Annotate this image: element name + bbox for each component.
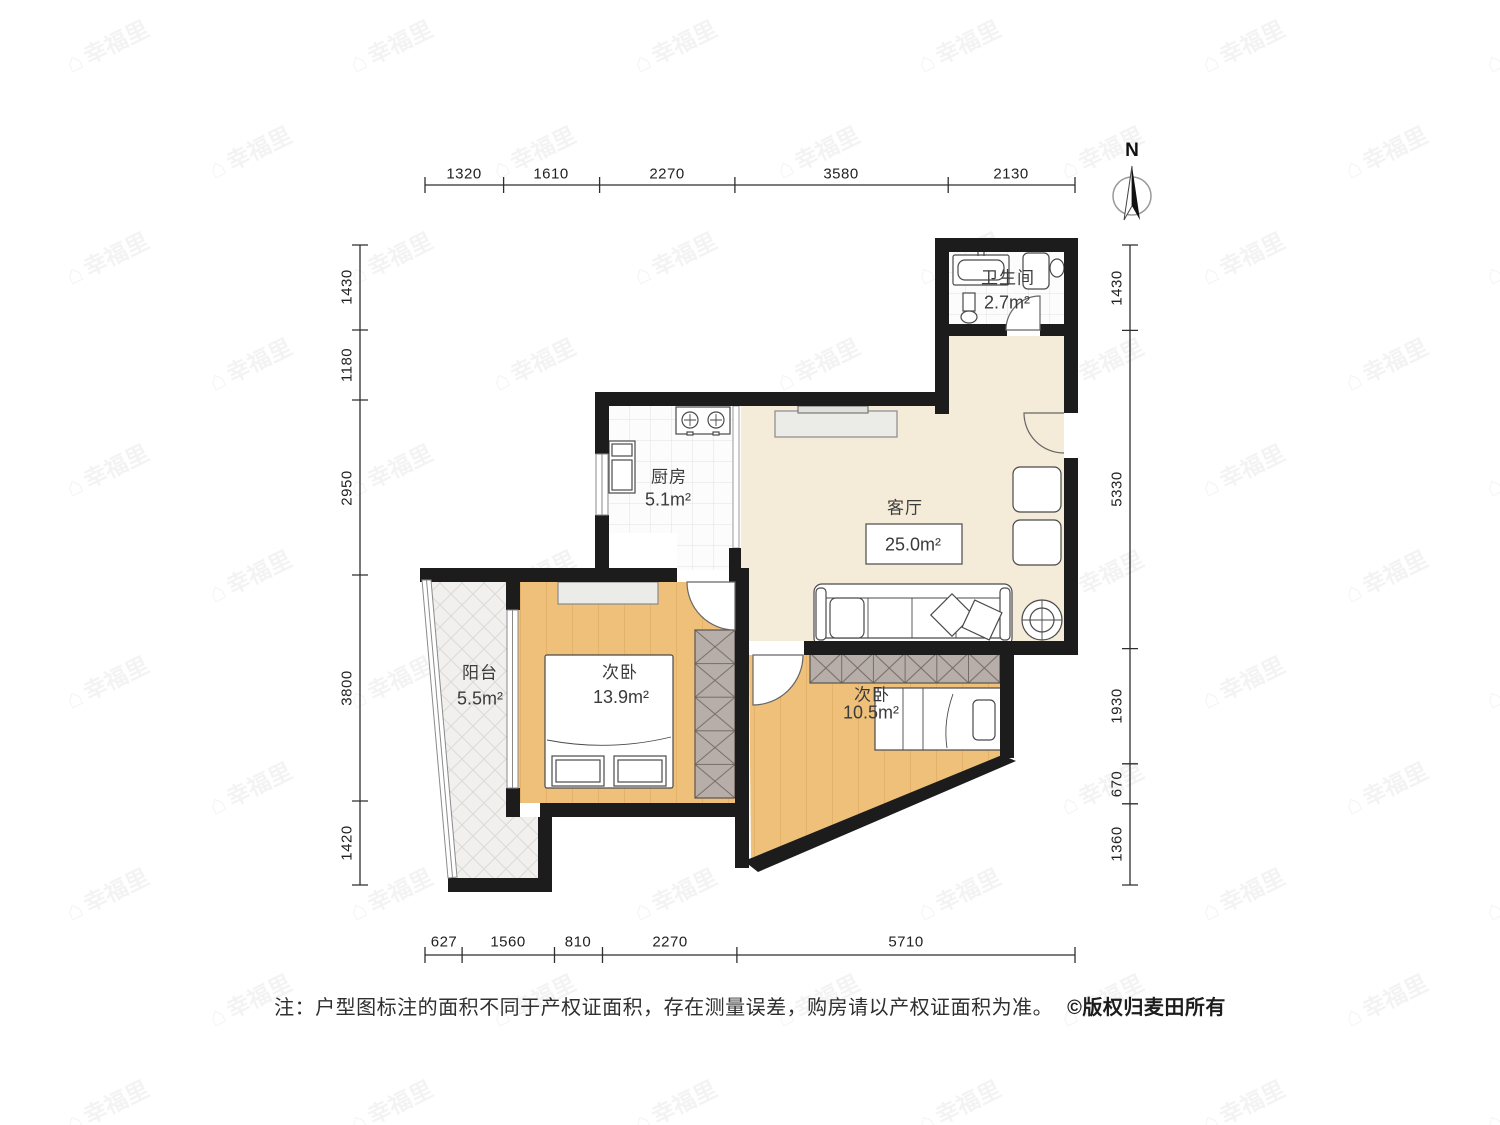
north-arrow-icon [1113,166,1151,220]
dim-label: 2270 [652,934,687,951]
dim-label: 627 [431,934,458,951]
dim-label: 1430 [1109,270,1126,305]
side-table-2 [1013,520,1061,565]
dim-label: 3800 [339,670,356,705]
entry-corridor-floor [949,336,1064,406]
round-table [1022,600,1062,640]
floorplan-page: ⌂幸福里⌂幸福里⌂幸福里⌂幸福里⌂幸福里⌂幸福里⌂幸福里⌂幸福里⌂幸福里⌂幸福里… [0,0,1500,1125]
dim-label: 1610 [533,166,568,183]
refrigerator [609,441,635,493]
dim-label: 5710 [888,934,923,951]
bedroom1-wardrobe [695,630,735,798]
dim-label: 3580 [823,166,858,183]
living-room-label: 客厅 [887,494,923,519]
floorplan-drawing [0,0,1500,1125]
kitchen-divider [733,406,739,548]
bedroom2-area: 10.5m² [843,703,899,724]
kitchen-label: 厨房 [651,463,687,488]
dim-label: 1360 [1109,826,1126,861]
bathroom-area: 2.7m² [984,293,1030,314]
dim-label: 2130 [993,166,1028,183]
bedroom2-wardrobe [810,653,1000,683]
kitchen-area: 5.1m² [645,490,691,511]
dim-label: 670 [1109,771,1126,798]
dim-label: 1180 [339,348,356,382]
living-room-area: 25.0m² [885,535,941,556]
sofa [814,584,1012,646]
dim-label: 1320 [446,166,481,183]
dim-label: 810 [565,934,592,951]
balcony-label: 阳台 [462,659,498,684]
side-table-1 [1013,467,1061,512]
disclaimer-note: 注：户型图标注的面积不同于产权证面积，存在测量误差，购房请以产权证面积为准。©版… [0,991,1500,1020]
tv-cabinet [775,406,897,437]
dim-label: 1420 [339,825,356,860]
dim-label: 1560 [490,934,525,951]
balcony-area: 5.5m² [457,689,503,710]
dim-label: 2950 [339,470,356,505]
dresser [558,582,658,604]
bedroom1-label: 次卧 [594,663,646,683]
bathroom-label: 卫生间 [981,264,1035,289]
dim-label: 1430 [339,269,356,304]
kitchen-floor-notch [609,533,677,570]
stove [676,407,730,435]
dim-label: 2270 [649,166,684,183]
bedroom1-area: 13.9m² [585,687,657,707]
copyright-text: ©版权归麦田所有 [1067,997,1226,1019]
note-text: 注：户型图标注的面积不同于产权证面积，存在测量误差，购房请以产权证面积为准。 [274,997,1053,1019]
dim-label: 5330 [1109,471,1126,506]
north-label: N [1125,140,1139,162]
dim-label: 1930 [1109,688,1126,723]
